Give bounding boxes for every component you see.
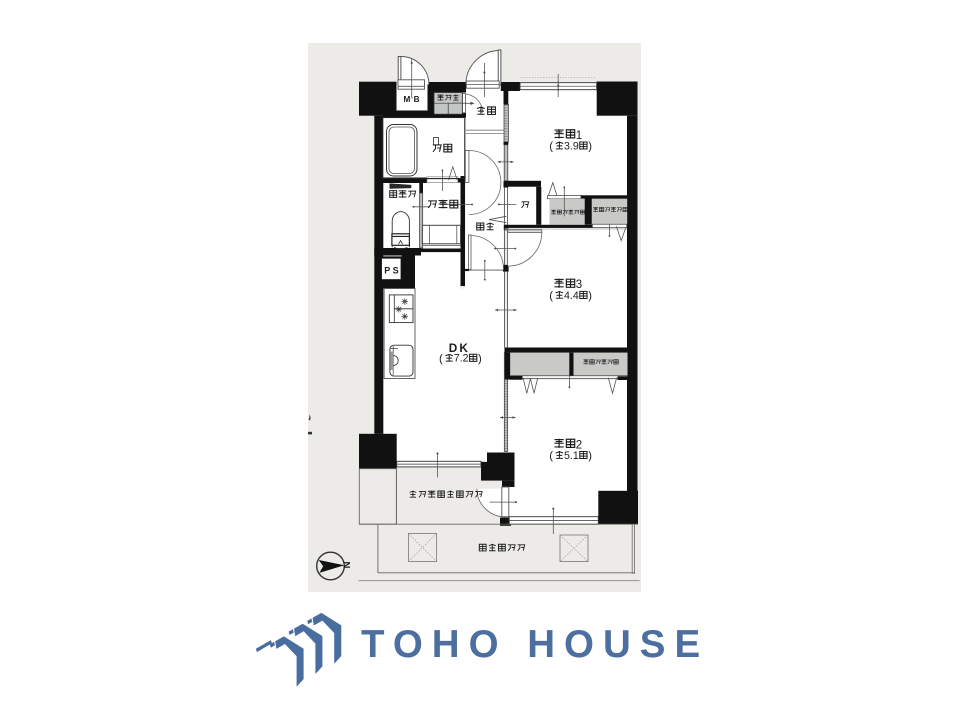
svg-text:): ) <box>588 290 592 302</box>
svg-text:B: B <box>414 95 420 104</box>
svg-text:5.1: 5.1 <box>564 450 579 462</box>
svg-text:M: M <box>404 95 411 104</box>
svg-text:): ) <box>588 450 592 462</box>
svg-text:N: N <box>341 562 352 569</box>
svg-text:P S: P S <box>384 265 398 275</box>
svg-text:): ) <box>478 353 482 365</box>
svg-text:(: ( <box>439 353 443 365</box>
svg-text:7.2: 7.2 <box>454 353 469 365</box>
svg-text:(: ( <box>549 450 553 462</box>
svg-text:(: ( <box>549 141 553 153</box>
svg-text:4.4: 4.4 <box>564 290 579 302</box>
svg-text:): ) <box>588 141 592 153</box>
svg-text:3.9: 3.9 <box>564 140 579 152</box>
svg-text:TOHO HOUSE: TOHO HOUSE <box>361 623 709 666</box>
svg-text:(: ( <box>549 290 553 302</box>
